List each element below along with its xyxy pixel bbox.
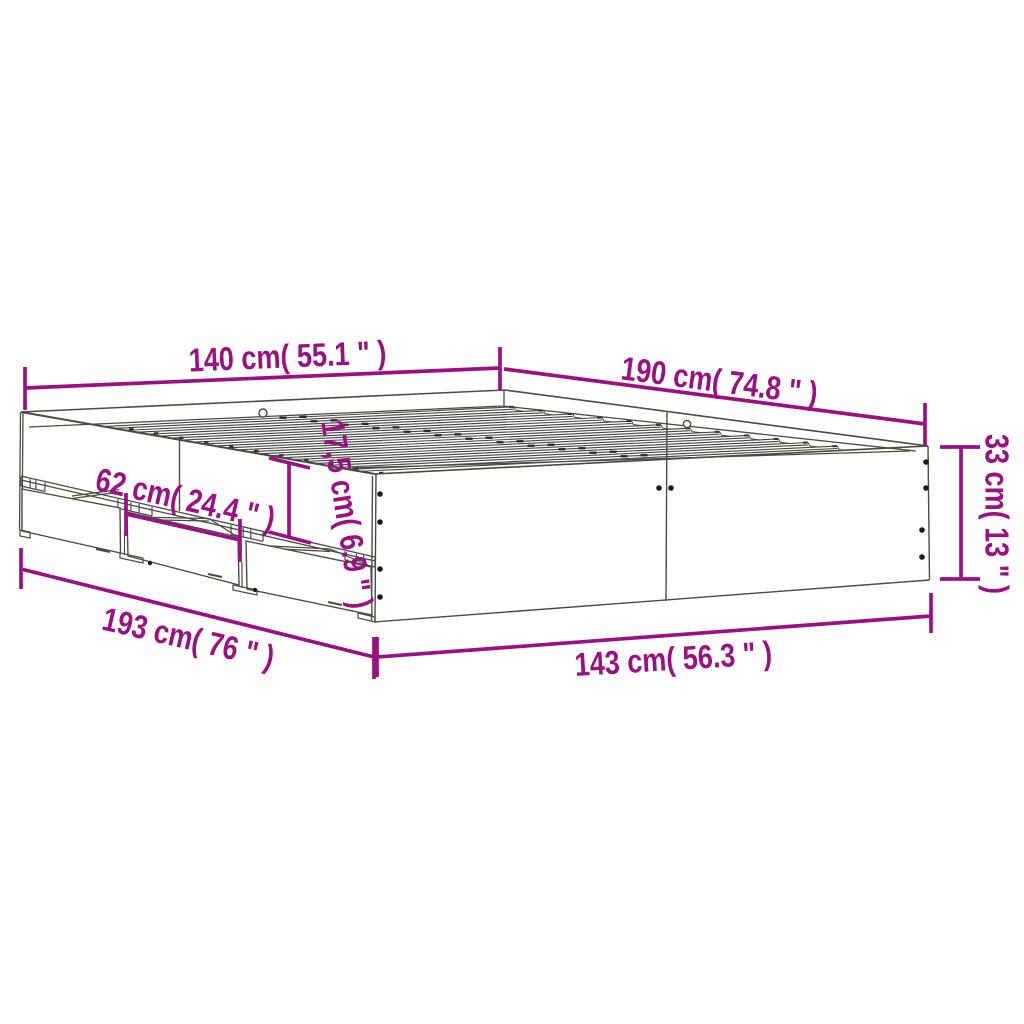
svg-text:33 cm( 13 " ): 33 cm( 13 " ) — [978, 434, 1014, 594]
